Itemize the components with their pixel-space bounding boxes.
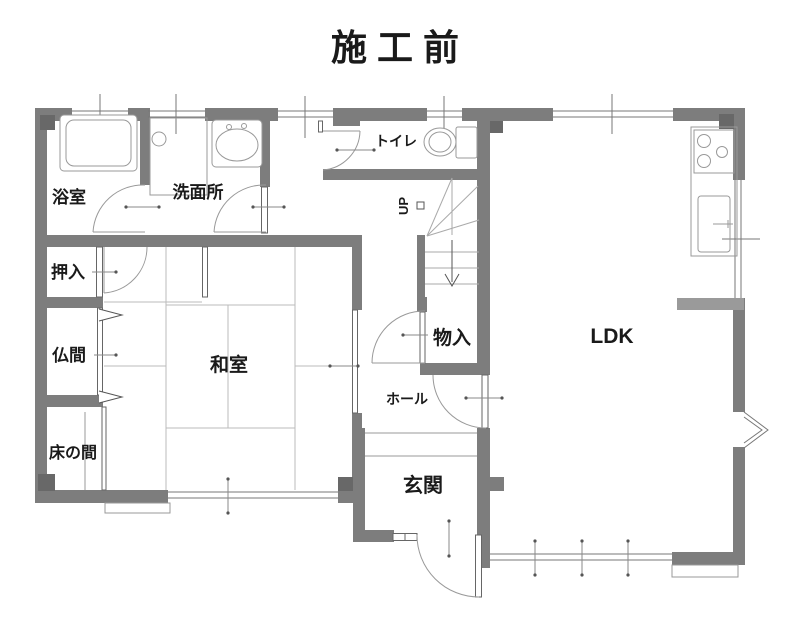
floor-plan-drawing: 施工前 [0,0,800,626]
label-washitsu: 和室 [210,353,248,376]
label-stairs-up: UP [396,197,411,215]
label-ldk: LDK [590,325,633,348]
bay-window [744,412,768,448]
label-toilet: トイレ [375,133,417,149]
label-bathroom: 浴室 [52,187,86,207]
kitchen-unit [691,127,737,256]
thin-walls [97,121,489,597]
wash-basin [212,120,262,167]
entrance-step-lines [365,433,477,456]
label-butsuma: 仏間 [52,346,86,365]
label-storage: 物入 [433,326,471,349]
label-hall: ホール [386,391,428,407]
bathtub [60,115,137,171]
exterior-steps [105,503,738,577]
label-tokonoma: 床の間 [49,443,97,462]
kitchen-counter-bar [677,298,744,310]
room-labels: 浴室 洗面所 トイレ 押入 仏間 和室 床の間 物入 ホール 玄関 LDK UP [49,133,634,497]
walls [35,108,745,568]
toilet-fixture [424,127,477,158]
page-title: 施工前 [331,28,469,68]
label-closet: 押入 [51,262,85,282]
label-washroom: 洗面所 [173,182,224,202]
floor-plan-page: 施工前 [0,0,800,626]
label-entrance: 玄関 [403,473,443,497]
